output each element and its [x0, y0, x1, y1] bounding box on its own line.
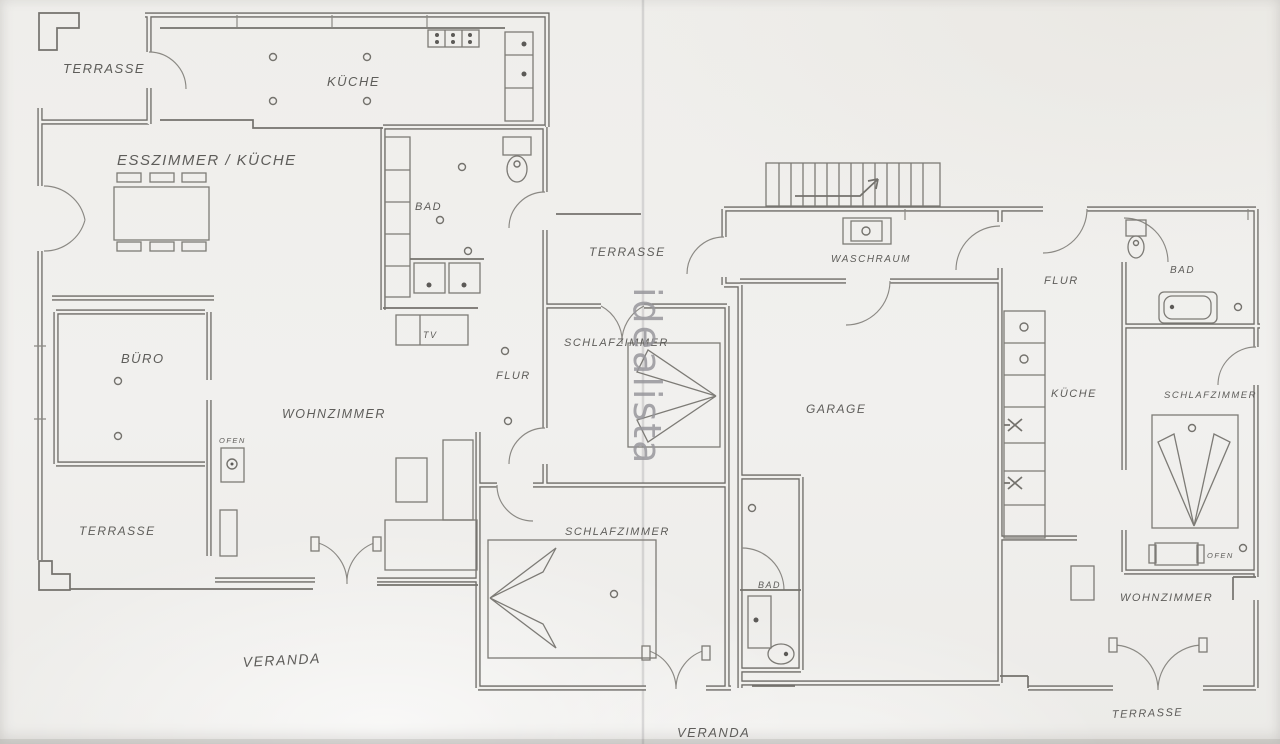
bathroom-south-fixtures — [740, 590, 801, 664]
scan-bottom-edge — [0, 739, 1280, 744]
bathtub-symbol — [1159, 292, 1217, 323]
room-label-veranda-south: VERANDA — [677, 725, 750, 740]
room-label-wohnzimmer-annex: WOHNZIMMER — [1120, 592, 1213, 604]
room-label-terrasse-sw: TERRASSE — [79, 524, 156, 538]
right-building-walls — [724, 209, 1260, 688]
kitchen-sink-symbol — [505, 32, 533, 121]
room-label-schlafzimmer-south: SCHLAFZIMMER — [565, 526, 670, 538]
kitchen-counter-annex-symbol — [1004, 311, 1045, 538]
room-label-tv: TV — [423, 330, 438, 340]
floor-plan-scan: TERRASSE KÜCHE ESSZIMMER / KÜCHE BAD TER… — [0, 0, 1280, 744]
light-point-icons — [115, 54, 1247, 598]
sofa-symbol-annex — [1149, 543, 1204, 565]
stairs-direction-arrow — [795, 179, 878, 196]
hob-symbol — [1004, 477, 1022, 489]
stove-symbol-annex — [1071, 566, 1094, 600]
room-label-ofen-annex: OFEN — [1207, 551, 1234, 560]
room-label-buero: BÜRO — [121, 351, 165, 366]
room-label-terrasse-center: TERRASSE — [589, 245, 666, 259]
idealista-watermark: idealista — [625, 287, 669, 465]
room-label-kueche-main: KÜCHE — [327, 74, 380, 89]
floor-plan-drawing: TERRASSE KÜCHE ESSZIMMER / KÜCHE BAD TER… — [0, 0, 1280, 744]
hob-symbol — [1004, 419, 1022, 431]
bed-symbol-annex — [1152, 415, 1238, 528]
room-label-bad-main: BAD — [415, 201, 442, 213]
dining-table-symbol — [114, 173, 209, 251]
room-label-ofen-main: OFEN — [219, 436, 246, 445]
room-label-veranda-main: VERANDA — [242, 650, 321, 670]
room-label-garage: GARAGE — [806, 402, 866, 416]
washbasin-symbol — [410, 259, 484, 293]
toilet-symbol — [503, 137, 531, 182]
bed-symbol-south — [488, 540, 656, 658]
room-label-esszimmer-kueche: ESSZIMMER / KÜCHE — [117, 151, 297, 169]
room-label-bad-south: BAD — [758, 580, 781, 590]
room-label-flur-main: FLUR — [496, 370, 531, 382]
room-label-waschraum: WASCHRAUM — [831, 254, 911, 265]
toilet-symbol-annex — [1126, 220, 1146, 258]
stairs-symbol — [766, 163, 940, 206]
room-label-bad-annex: BAD — [1170, 265, 1195, 276]
room-label-terrasse-nw: TERRASSE — [63, 61, 145, 76]
oven-symbol — [220, 448, 244, 556]
washing-machine-symbol — [843, 218, 891, 244]
closet-symbol — [385, 137, 410, 297]
room-label-kueche-annex: KÜCHE — [1051, 388, 1097, 400]
room-label-schlafzimmer-annex: SCHLAFZIMMER — [1164, 390, 1257, 401]
room-label-wohnzimmer-main: WOHNZIMMER — [282, 407, 386, 421]
room-label-terrasse-se: TERRASSE — [1112, 707, 1184, 721]
room-label-flur-annex: FLUR — [1044, 275, 1079, 287]
stove-symbol — [428, 30, 479, 47]
sofa-symbol — [385, 440, 477, 570]
